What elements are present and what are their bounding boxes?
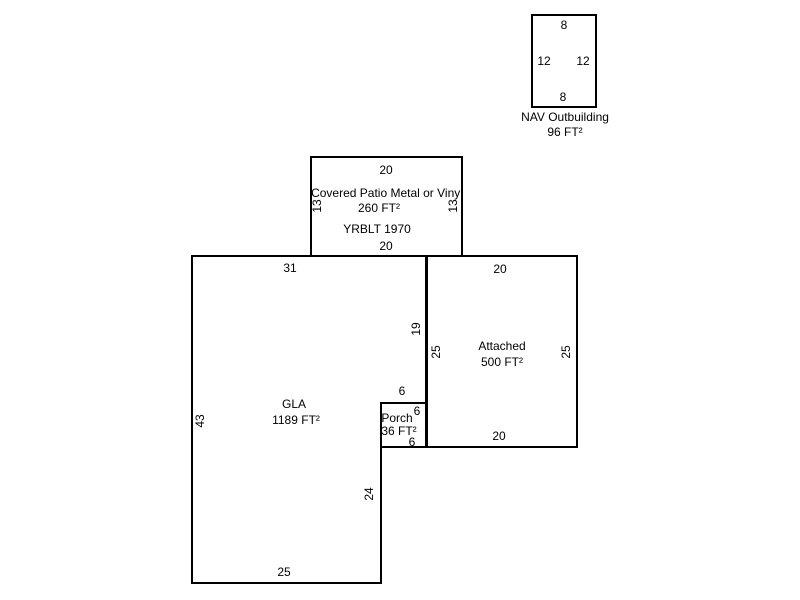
nav-dim-top: 8 — [561, 19, 568, 31]
building-sketch-diagram: 8 12 12 8 NAV Outbuilding 96 FT² 20 Cove… — [0, 0, 800, 600]
patio-dim-left: 13 — [311, 199, 323, 212]
patio-name-label: Covered Patio Metal or Vinyl — [311, 187, 463, 199]
gla-dim-right-upper: 19 — [410, 322, 422, 335]
attached-dim-top: 20 — [493, 263, 506, 275]
patio-area-label: 260 FT² — [358, 202, 400, 214]
nav-dim-bottom: 8 — [560, 91, 567, 103]
nav-name-label: NAV Outbuilding — [521, 111, 609, 123]
attached-dim-right: 25 — [560, 345, 572, 358]
attached-dim-bottom: 20 — [492, 430, 505, 442]
gla-area-label: 1189 FT² — [272, 414, 320, 426]
gla-dim-top: 31 — [283, 262, 296, 274]
gla-name-label: GLA — [282, 398, 306, 410]
sketch-canvas — [0, 0, 800, 600]
porch-dim-bottom: 6 — [409, 436, 416, 448]
gla-dim-right-lower: 24 — [363, 487, 375, 500]
nav-area-label: 96 FT² — [547, 126, 582, 138]
porch-dim-right: 6 — [414, 405, 421, 417]
patio-dim-bottom: 20 — [379, 240, 392, 252]
nav-dim-right: 12 — [576, 55, 589, 67]
gla-dim-notch-top: 6 — [399, 385, 406, 397]
gla-dim-bottom: 25 — [277, 566, 290, 578]
nav-dim-left: 12 — [537, 55, 550, 67]
patio-dim-top: 20 — [379, 164, 392, 176]
patio-yrblt-label: YRBLT 1970 — [343, 223, 411, 235]
porch-name-label: Porch — [381, 412, 412, 424]
gla-dim-left: 43 — [194, 414, 206, 427]
attached-dim-left: 25 — [430, 345, 442, 358]
patio-dim-right: 13 — [447, 199, 459, 212]
attached-area-label: 500 FT² — [481, 356, 523, 368]
attached-name-label: Attached — [478, 340, 525, 352]
